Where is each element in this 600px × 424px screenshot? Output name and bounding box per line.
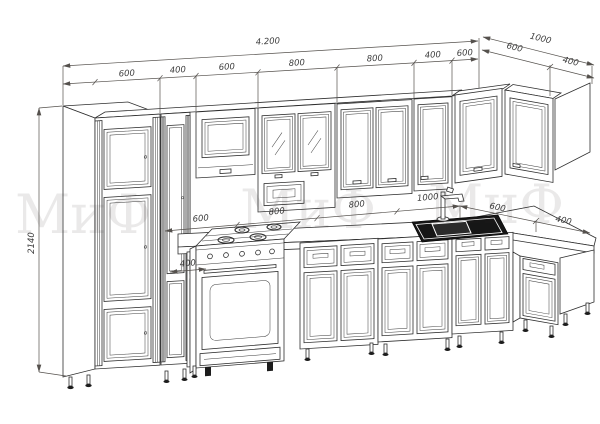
glass-door-right: [298, 112, 331, 172]
svg-text:600: 600: [456, 48, 473, 59]
svg-text:600: 600: [218, 62, 235, 73]
gas-stove: [190, 222, 300, 377]
svg-text:400: 400: [561, 55, 579, 69]
pantry-upper-door: [104, 127, 151, 190]
corner-wall-cabinet: [455, 88, 502, 183]
base-cabinet-800-a: [300, 238, 378, 349]
stove-front: [196, 239, 284, 377]
corner-base-filler: [513, 252, 520, 322]
svg-text:400: 400: [169, 65, 186, 76]
svg-text:400: 400: [424, 50, 441, 61]
dim-base-left: 400: [179, 258, 196, 269]
wall-door-right: [376, 106, 408, 188]
flipup-wall-cabinet: [196, 108, 255, 178]
svg-text:800: 800: [288, 58, 305, 69]
rightwall-upper-end-panel: [555, 83, 590, 170]
kitchen-elevation-svg: 4.200 1000 600 400 600 800 800 400 600 6…: [0, 0, 600, 424]
dim-right-depth: 1000: [529, 32, 552, 47]
watermark-text-2: МиФ: [240, 178, 376, 241]
svg-text:600: 600: [192, 213, 209, 224]
rightwall-base-cabinet: [520, 256, 558, 325]
pantry-lower-door: [104, 307, 151, 362]
flipup-handle: [220, 169, 231, 174]
watermark-text-1: МиФ: [15, 183, 151, 246]
glass-door-left: [262, 114, 295, 174]
sink-base-cabinet: [452, 232, 513, 334]
watermark: МиФ МиФ МиФ: [15, 173, 564, 246]
svg-text:600: 600: [505, 41, 523, 55]
drawing-canvas: 4.200 1000 600 400 600 800 800 400 600 6…: [0, 0, 600, 424]
svg-text:800: 800: [366, 54, 383, 65]
watermark-text-3: МиФ: [428, 173, 564, 236]
base-cabinet-800-b: [378, 235, 452, 342]
rightwall-wall-cabinet: [505, 90, 553, 182]
svg-text:600: 600: [118, 69, 135, 80]
oven-door: [202, 271, 278, 349]
dim-total-width: 4.200: [255, 36, 280, 47]
